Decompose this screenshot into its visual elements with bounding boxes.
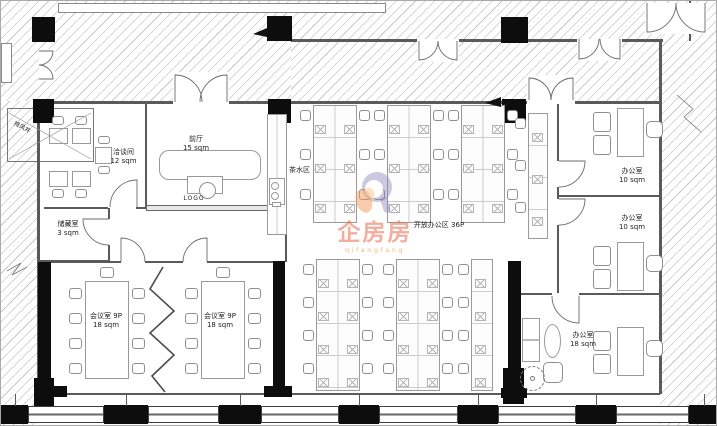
chair bbox=[69, 363, 82, 374]
pedestal bbox=[475, 279, 486, 288]
mullion-stub bbox=[15, 394, 16, 406]
negotiation-door-arc bbox=[110, 180, 137, 207]
pedestal bbox=[492, 125, 503, 134]
pedestal bbox=[492, 164, 503, 173]
window-segment bbox=[28, 406, 104, 423]
chair bbox=[433, 189, 444, 200]
column bbox=[38, 262, 51, 393]
pedestal bbox=[418, 204, 429, 213]
window-segment bbox=[379, 406, 458, 423]
column bbox=[33, 99, 54, 123]
hatch-region bbox=[291, 42, 660, 101]
wall bbox=[207, 261, 273, 263]
pedestal bbox=[318, 279, 329, 288]
pedestal bbox=[463, 204, 474, 213]
chair bbox=[433, 149, 444, 160]
wall bbox=[145, 261, 183, 263]
mullion-block bbox=[339, 405, 379, 424]
chair bbox=[515, 118, 526, 129]
chair bbox=[303, 363, 314, 374]
armchair bbox=[543, 362, 563, 383]
pedestal bbox=[344, 164, 355, 173]
pedestal bbox=[492, 204, 503, 213]
room-label-office1: 办公室 10 sqm bbox=[601, 167, 663, 185]
guest-chair bbox=[593, 354, 611, 374]
pedestal bbox=[347, 279, 358, 288]
chair bbox=[362, 363, 373, 374]
chair bbox=[448, 149, 459, 160]
mullion-stub bbox=[596, 394, 597, 406]
pedestal bbox=[532, 175, 543, 184]
chair bbox=[362, 297, 373, 308]
guest-chair bbox=[593, 112, 611, 132]
wall bbox=[557, 187, 559, 199]
mullion-block bbox=[104, 405, 148, 424]
wall bbox=[521, 293, 552, 295]
pedestal bbox=[318, 378, 329, 387]
chair bbox=[515, 160, 526, 171]
exec-chair bbox=[646, 340, 663, 357]
chair bbox=[98, 166, 110, 174]
wall bbox=[108, 245, 110, 261]
guest-chair bbox=[593, 269, 611, 289]
pedestal bbox=[315, 204, 326, 213]
chair bbox=[69, 313, 82, 324]
chair bbox=[185, 313, 198, 324]
pedestal bbox=[398, 279, 409, 288]
wall bbox=[689, 1, 691, 41]
chair bbox=[132, 313, 145, 324]
pedestal bbox=[398, 312, 409, 321]
chair bbox=[248, 363, 261, 374]
chair bbox=[132, 363, 145, 374]
logo-wall bbox=[146, 205, 268, 211]
pedestal bbox=[475, 378, 486, 387]
chair bbox=[383, 264, 394, 275]
column bbox=[273, 261, 285, 390]
conference-table bbox=[85, 281, 129, 379]
chair bbox=[507, 189, 518, 200]
small-table bbox=[49, 171, 68, 187]
guest-chair bbox=[593, 331, 611, 351]
pedestal bbox=[398, 378, 409, 387]
chair bbox=[75, 116, 87, 125]
pedestal bbox=[318, 345, 329, 354]
wall bbox=[44, 207, 108, 209]
meeting-right-door-arc bbox=[183, 238, 207, 262]
pedestal bbox=[463, 125, 474, 134]
reception-chair bbox=[199, 182, 216, 199]
chair bbox=[100, 267, 114, 278]
chair bbox=[52, 189, 64, 198]
office-desk bbox=[617, 242, 644, 291]
pedestal bbox=[389, 125, 400, 134]
chair bbox=[374, 189, 385, 200]
wall bbox=[108, 208, 110, 219]
pedestal bbox=[475, 312, 486, 321]
chair bbox=[362, 264, 373, 275]
chair bbox=[52, 116, 64, 125]
wall bbox=[145, 104, 147, 208]
chair bbox=[458, 297, 469, 308]
window-segment bbox=[148, 406, 219, 423]
watermark-brand: 企房房 bbox=[325, 221, 425, 245]
pedestal bbox=[427, 345, 438, 354]
room-label-office2: 办公室 10 sqm bbox=[601, 214, 663, 232]
chair bbox=[442, 264, 453, 275]
pedestal bbox=[463, 164, 474, 173]
pedestal bbox=[347, 378, 358, 387]
wall-cap bbox=[58, 3, 386, 13]
coffee-table bbox=[544, 324, 561, 358]
mullion-stub bbox=[126, 394, 127, 406]
pedestal bbox=[347, 345, 358, 354]
chair bbox=[374, 149, 385, 160]
wall bbox=[37, 393, 660, 395]
office-desk bbox=[617, 108, 644, 157]
window-segment bbox=[498, 406, 576, 423]
chair bbox=[98, 136, 110, 144]
chair bbox=[458, 363, 469, 374]
chair bbox=[359, 149, 370, 160]
chair bbox=[515, 202, 526, 213]
folding-partition-zigzag bbox=[150, 267, 174, 392]
pedestal bbox=[418, 125, 429, 134]
chair bbox=[359, 110, 370, 121]
chair bbox=[185, 338, 198, 349]
chair bbox=[216, 267, 230, 278]
small-table bbox=[95, 147, 112, 164]
chair bbox=[185, 288, 198, 299]
wall bbox=[579, 293, 660, 295]
mullion-stub bbox=[359, 394, 360, 406]
pedestal bbox=[315, 125, 326, 134]
conference-table bbox=[201, 281, 245, 379]
window-segment bbox=[616, 406, 689, 423]
pedestal bbox=[389, 164, 400, 173]
chair bbox=[374, 110, 385, 121]
office2-door-arc bbox=[559, 199, 585, 225]
tea-appliance bbox=[272, 202, 281, 207]
mullion-block bbox=[576, 405, 616, 424]
chair bbox=[448, 189, 459, 200]
wall bbox=[136, 207, 146, 209]
chair bbox=[303, 330, 314, 341]
chair bbox=[248, 288, 261, 299]
chair bbox=[383, 297, 394, 308]
pedestal bbox=[532, 133, 543, 142]
chair bbox=[300, 149, 311, 160]
chair bbox=[300, 110, 311, 121]
mullion-block bbox=[689, 405, 717, 424]
chair bbox=[185, 363, 198, 374]
chair bbox=[69, 288, 82, 299]
column bbox=[501, 388, 527, 398]
wall bbox=[621, 39, 663, 42]
mullion-block bbox=[219, 405, 261, 424]
watermark-pinyin: qifangfang bbox=[325, 246, 425, 254]
pedestal bbox=[318, 312, 329, 321]
chair bbox=[433, 110, 444, 121]
mullion-stub bbox=[478, 394, 479, 406]
pedestal bbox=[418, 164, 429, 173]
column bbox=[501, 17, 528, 43]
tea-appliance bbox=[271, 192, 279, 200]
pedestal bbox=[389, 204, 400, 213]
mullion-stub bbox=[704, 394, 705, 406]
chair bbox=[458, 264, 469, 275]
mullion-block bbox=[1, 405, 28, 424]
small-table bbox=[49, 128, 68, 144]
floor-plan: 排风井 前厅 15 sqm 洽谈间 12 sqm 茶水区 LOGO 储藏室 3 … bbox=[0, 0, 717, 426]
office1-door-arc bbox=[559, 161, 585, 187]
small-table bbox=[72, 171, 91, 187]
plant-center bbox=[530, 376, 535, 381]
chair bbox=[507, 149, 518, 160]
sofa bbox=[522, 318, 540, 362]
column bbox=[32, 17, 55, 42]
chair bbox=[383, 363, 394, 374]
chair bbox=[69, 338, 82, 349]
exec-chair bbox=[646, 255, 663, 272]
office-desk bbox=[617, 327, 644, 376]
tea-appliance bbox=[271, 182, 279, 190]
wall bbox=[37, 101, 173, 104]
chair bbox=[75, 189, 87, 198]
meeting-left-door-arc bbox=[121, 238, 145, 262]
pedestal bbox=[315, 164, 326, 173]
small-table bbox=[72, 128, 91, 144]
pedestal bbox=[475, 345, 486, 354]
wall-notch bbox=[1, 43, 12, 83]
pedestal bbox=[427, 378, 438, 387]
guest-chair bbox=[593, 246, 611, 266]
pedestal bbox=[347, 312, 358, 321]
chair bbox=[442, 363, 453, 374]
hatch-region bbox=[1, 1, 291, 101]
chair bbox=[248, 313, 261, 324]
chair bbox=[132, 338, 145, 349]
chair bbox=[303, 264, 314, 275]
storage-door-arc bbox=[83, 219, 109, 245]
pedestal bbox=[427, 312, 438, 321]
wall bbox=[285, 235, 287, 262]
pedestal bbox=[532, 217, 543, 226]
wall bbox=[557, 195, 660, 197]
mullion-block bbox=[458, 405, 498, 424]
chair bbox=[383, 330, 394, 341]
wall bbox=[557, 104, 559, 161]
room-label-storage: 储藏室 3 sqm bbox=[41, 220, 95, 238]
chair bbox=[458, 330, 469, 341]
chair bbox=[132, 288, 145, 299]
hatch-region bbox=[660, 1, 717, 426]
guest-chair bbox=[593, 135, 611, 155]
exec-chair bbox=[646, 121, 663, 138]
chair bbox=[442, 297, 453, 308]
mullion-stub bbox=[240, 394, 241, 406]
pedestal bbox=[344, 125, 355, 134]
chair bbox=[448, 110, 459, 121]
wall bbox=[575, 101, 660, 104]
pedestal bbox=[398, 345, 409, 354]
wall bbox=[291, 39, 417, 42]
office3-door-arc bbox=[552, 296, 579, 323]
column bbox=[264, 386, 292, 397]
chair bbox=[359, 189, 370, 200]
window-segment bbox=[261, 406, 339, 423]
pedestal bbox=[427, 279, 438, 288]
chair bbox=[362, 330, 373, 341]
column bbox=[43, 386, 67, 397]
chair bbox=[300, 189, 311, 200]
chair bbox=[442, 330, 453, 341]
chair bbox=[303, 297, 314, 308]
wall bbox=[557, 225, 559, 293]
tea-counter bbox=[267, 114, 287, 235]
column bbox=[267, 16, 292, 41]
pedestal bbox=[344, 204, 355, 213]
chair bbox=[248, 338, 261, 349]
